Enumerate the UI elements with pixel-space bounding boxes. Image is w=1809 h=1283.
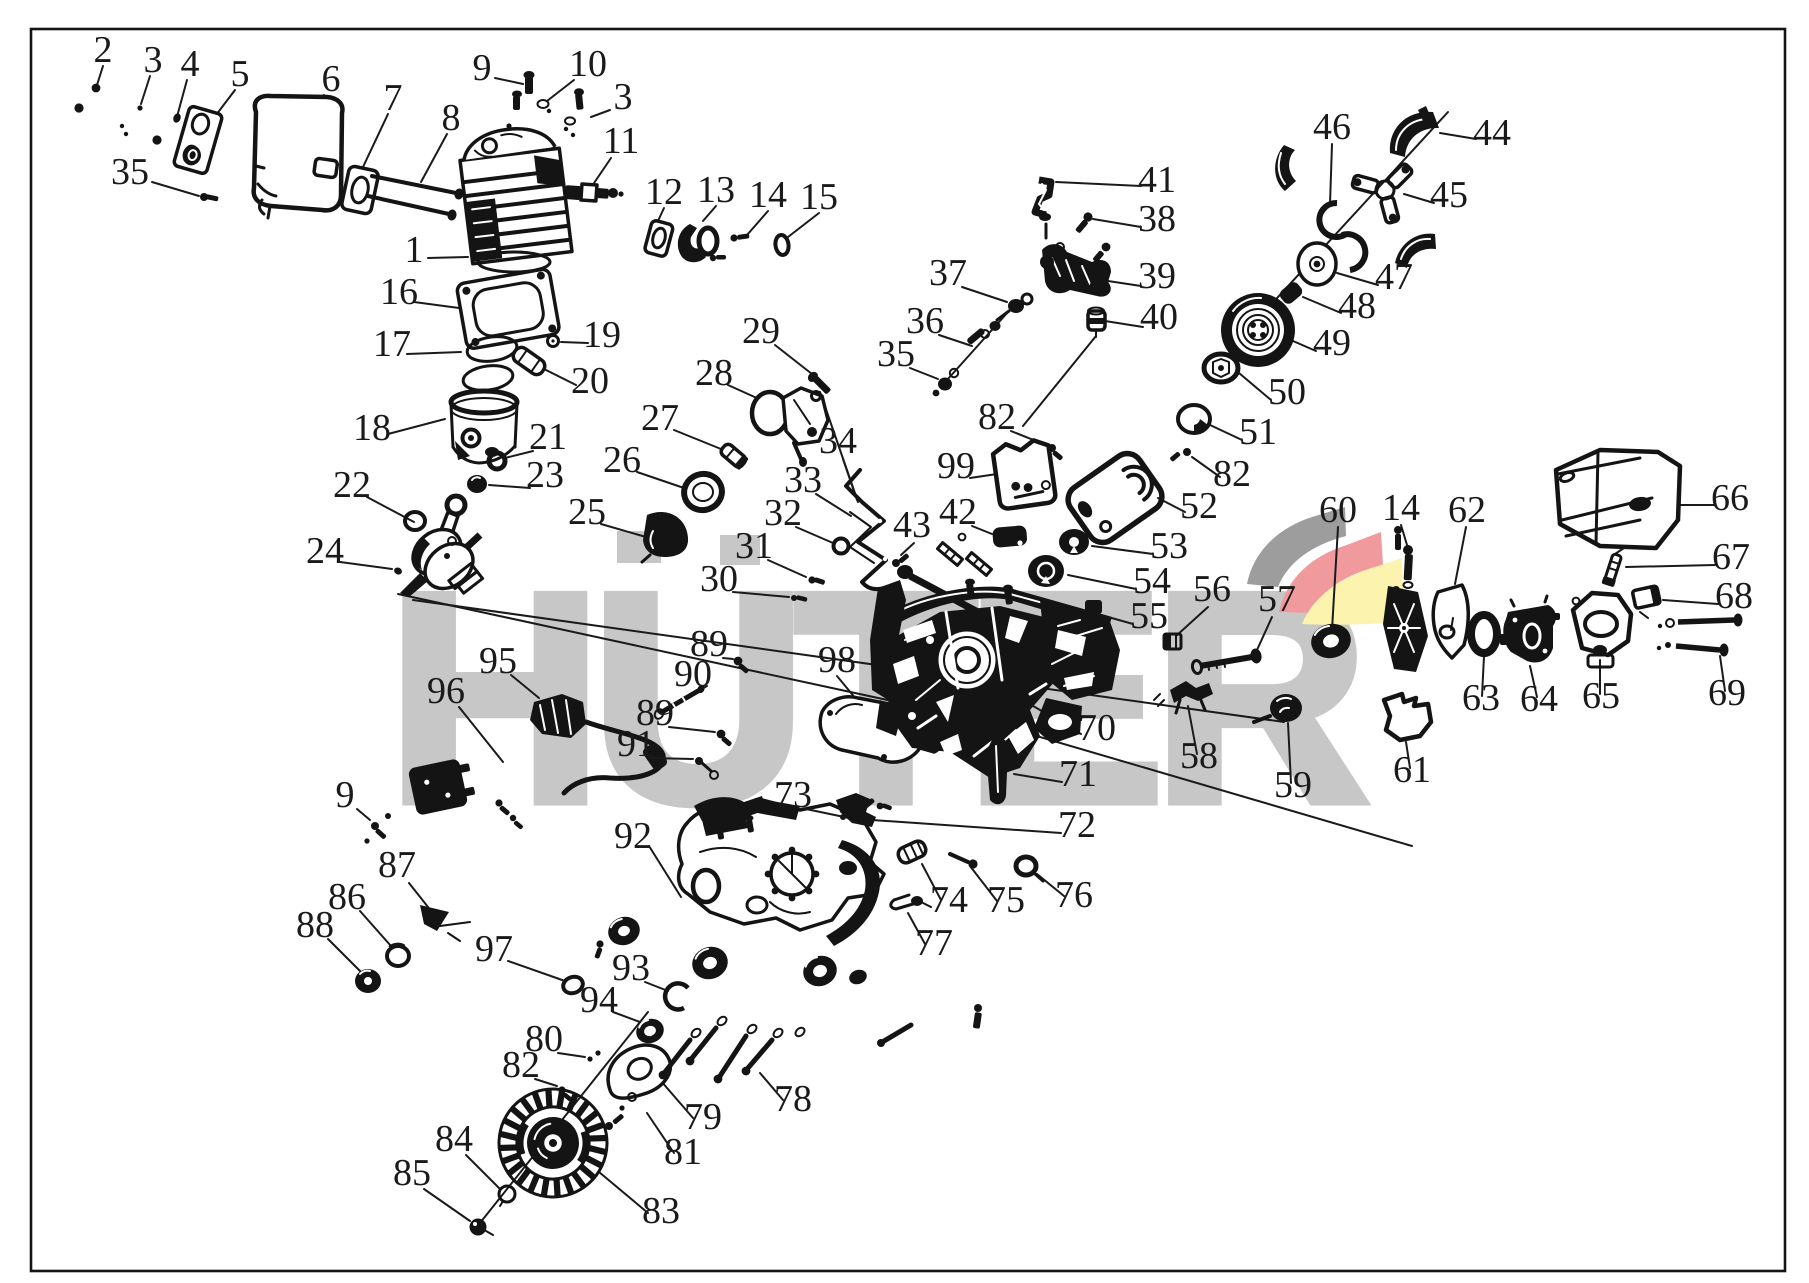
svg-text:14: 14: [1382, 487, 1420, 529]
svg-text:24: 24: [306, 530, 344, 572]
svg-text:68: 68: [1715, 575, 1753, 617]
svg-text:34: 34: [819, 420, 857, 462]
svg-text:96: 96: [427, 670, 465, 712]
svg-text:52: 52: [1180, 485, 1218, 527]
svg-text:66: 66: [1711, 477, 1749, 519]
svg-text:90: 90: [674, 653, 712, 695]
svg-text:98: 98: [818, 639, 856, 681]
svg-text:63: 63: [1462, 677, 1500, 719]
svg-text:70: 70: [1078, 707, 1116, 749]
svg-text:11: 11: [603, 120, 640, 162]
svg-text:77: 77: [915, 922, 953, 964]
svg-text:14: 14: [749, 174, 787, 216]
svg-text:62: 62: [1448, 489, 1486, 531]
svg-text:87: 87: [378, 844, 416, 886]
svg-text:45: 45: [1430, 174, 1468, 216]
svg-text:7: 7: [384, 77, 403, 119]
svg-text:60: 60: [1319, 489, 1357, 531]
svg-text:78: 78: [774, 1078, 812, 1120]
svg-text:26: 26: [603, 439, 641, 481]
svg-text:82: 82: [1213, 453, 1251, 495]
svg-text:23: 23: [526, 454, 564, 496]
svg-text:85: 85: [393, 1152, 431, 1194]
svg-text:83: 83: [642, 1190, 680, 1232]
svg-text:55: 55: [1130, 595, 1168, 637]
svg-text:94: 94: [580, 979, 618, 1021]
svg-text:51: 51: [1239, 411, 1277, 453]
svg-text:92: 92: [614, 815, 652, 857]
svg-text:72: 72: [1058, 804, 1096, 846]
svg-text:25: 25: [568, 491, 606, 533]
svg-text:48: 48: [1338, 285, 1376, 327]
svg-text:41: 41: [1138, 159, 1176, 201]
svg-text:39: 39: [1138, 255, 1176, 297]
svg-text:58: 58: [1180, 735, 1218, 777]
svg-text:1: 1: [405, 229, 424, 271]
svg-text:47: 47: [1375, 256, 1413, 298]
svg-text:15: 15: [800, 176, 838, 218]
svg-text:56: 56: [1193, 568, 1231, 610]
svg-text:6: 6: [322, 58, 341, 100]
svg-text:4: 4: [181, 43, 200, 85]
svg-text:10: 10: [569, 43, 607, 85]
svg-text:19: 19: [583, 314, 621, 356]
svg-text:28: 28: [695, 352, 733, 394]
svg-text:2: 2: [94, 29, 113, 71]
svg-text:40: 40: [1140, 296, 1178, 338]
svg-text:59: 59: [1274, 764, 1312, 806]
svg-text:3: 3: [614, 76, 633, 118]
svg-text:50: 50: [1268, 371, 1306, 413]
svg-text:9: 9: [473, 47, 492, 89]
svg-text:12: 12: [645, 171, 683, 213]
svg-text:61: 61: [1393, 749, 1431, 791]
svg-text:44: 44: [1473, 112, 1511, 154]
svg-text:57: 57: [1258, 578, 1296, 620]
svg-text:35: 35: [111, 151, 149, 193]
svg-text:18: 18: [353, 407, 391, 449]
svg-text:27: 27: [641, 397, 679, 439]
svg-text:46: 46: [1313, 106, 1351, 148]
svg-text:22: 22: [333, 464, 371, 506]
svg-text:5: 5: [231, 53, 250, 95]
svg-text:3: 3: [144, 39, 163, 81]
svg-text:13: 13: [697, 169, 735, 211]
svg-text:97: 97: [475, 928, 513, 970]
svg-text:67: 67: [1712, 536, 1750, 578]
svg-text:49: 49: [1313, 322, 1351, 364]
svg-text:8: 8: [442, 97, 461, 139]
svg-text:16: 16: [380, 271, 418, 313]
svg-text:75: 75: [987, 879, 1025, 921]
svg-text:64: 64: [1520, 678, 1558, 720]
svg-text:99: 99: [937, 445, 975, 487]
svg-text:81: 81: [664, 1131, 702, 1173]
svg-text:9: 9: [336, 774, 355, 816]
svg-text:74: 74: [930, 879, 968, 921]
svg-text:43: 43: [893, 504, 931, 546]
svg-text:38: 38: [1138, 198, 1176, 240]
svg-text:69: 69: [1708, 672, 1746, 714]
svg-text:17: 17: [373, 323, 411, 365]
svg-text:20: 20: [571, 360, 609, 402]
svg-text:30: 30: [700, 558, 738, 600]
svg-text:71: 71: [1059, 753, 1097, 795]
svg-text:76: 76: [1055, 874, 1093, 916]
svg-text:84: 84: [435, 1118, 473, 1160]
svg-text:21: 21: [529, 416, 567, 458]
